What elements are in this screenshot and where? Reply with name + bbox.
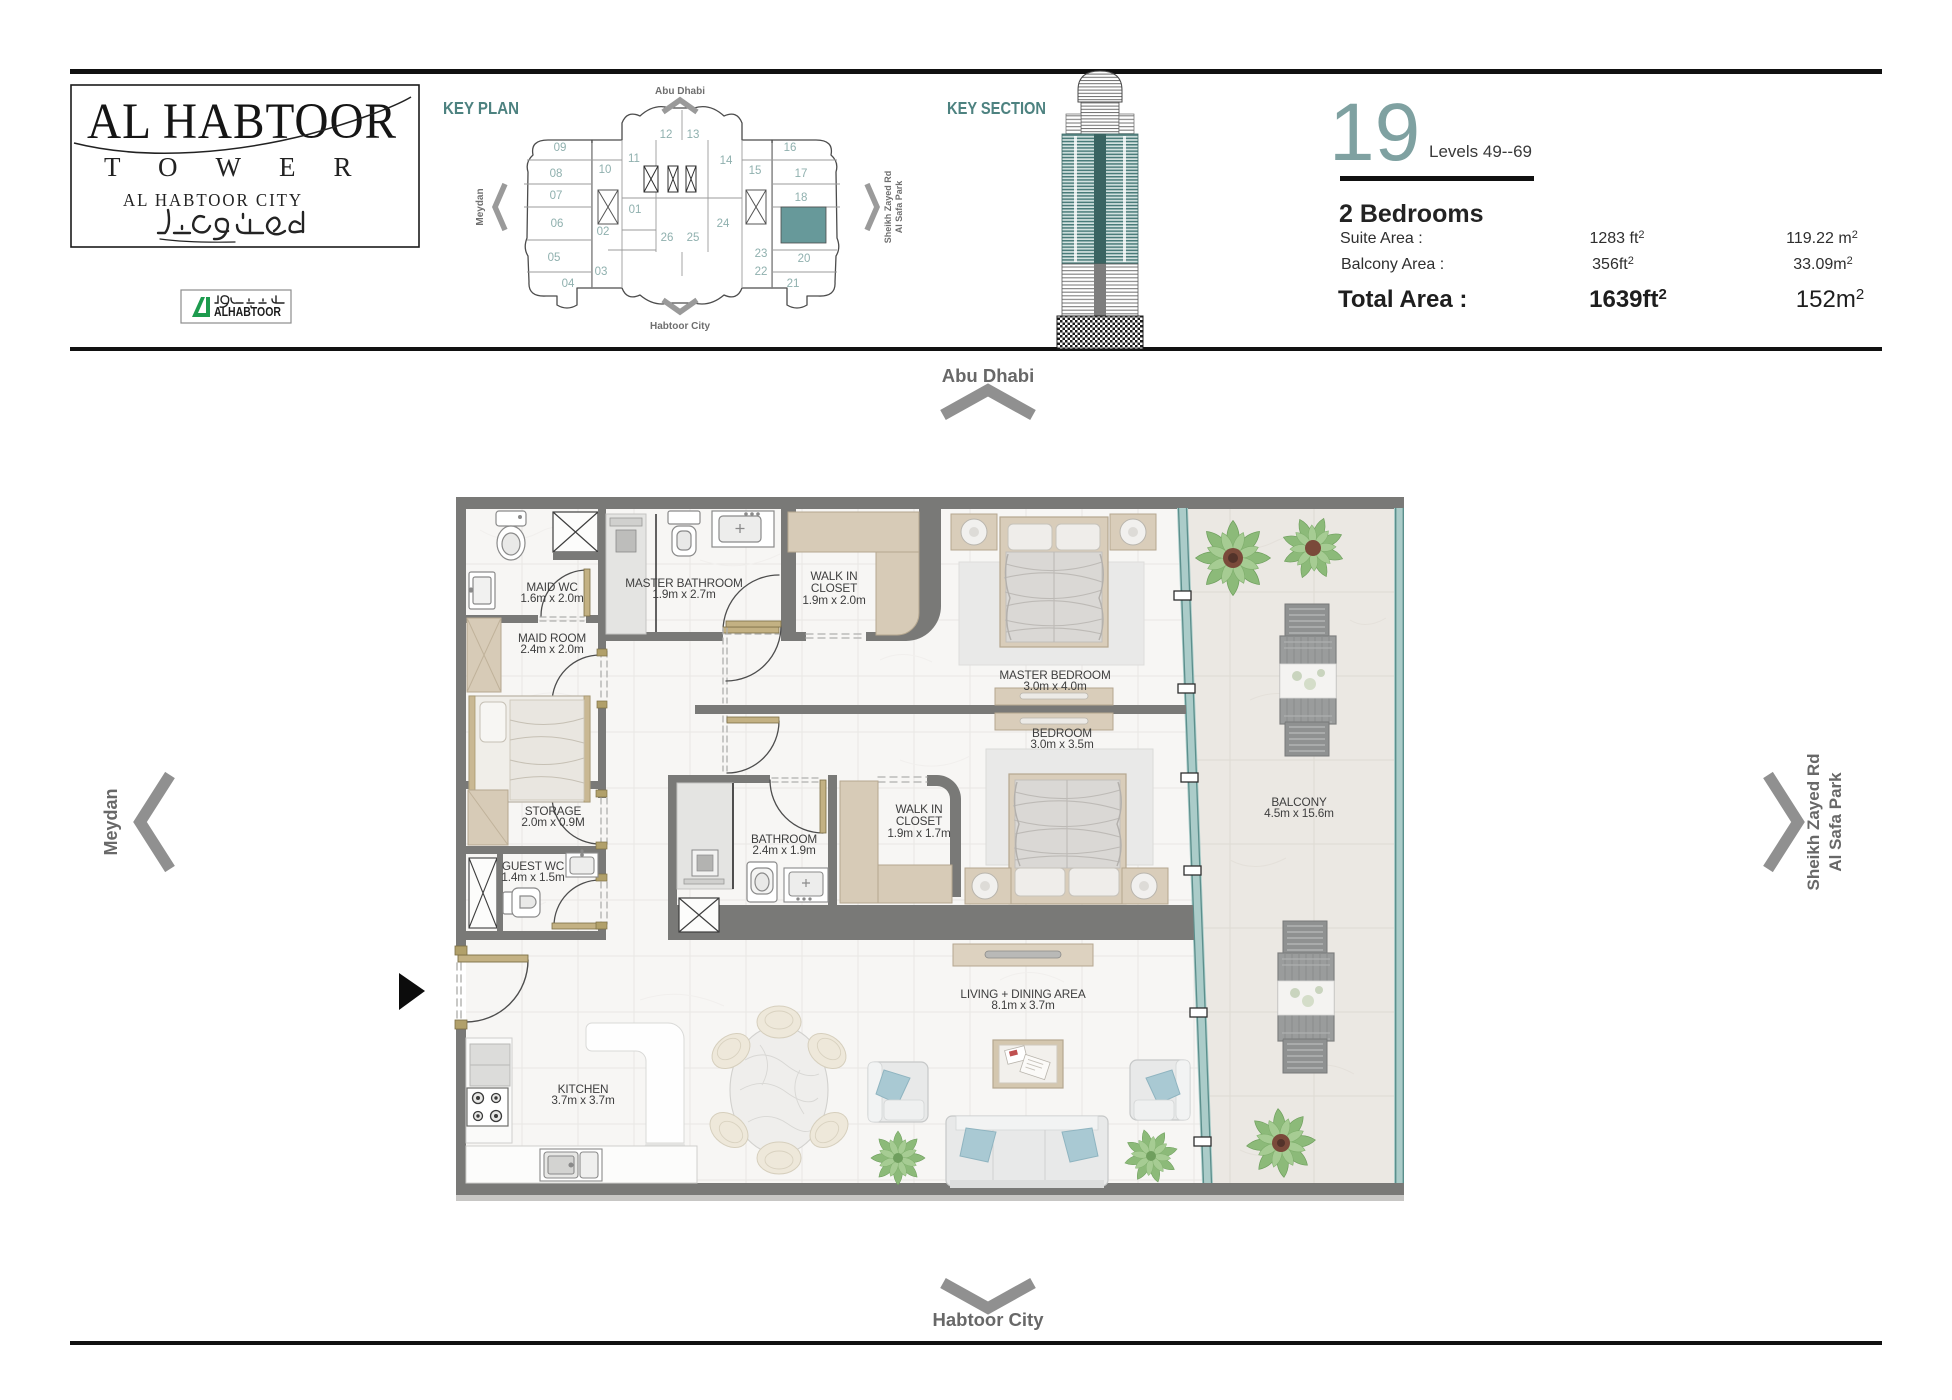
svg-text:21: 21 [787, 278, 800, 290]
svg-text:152m2: 152m2 [1796, 286, 1864, 313]
svg-text:04: 04 [562, 278, 575, 290]
svg-text:14: 14 [720, 155, 733, 167]
svg-text:3.7m x 3.7m: 3.7m x 3.7m [551, 1093, 615, 1107]
svg-text:18: 18 [795, 192, 808, 204]
svg-text:Habtoor City: Habtoor City [650, 321, 710, 332]
svg-text:06: 06 [551, 218, 564, 230]
svg-text:Meydan: Meydan [475, 188, 486, 225]
svg-text:15: 15 [749, 165, 762, 177]
svg-text:Sheikh Zayed Rd: Sheikh Zayed Rd [1804, 754, 1823, 891]
svg-text:08: 08 [550, 168, 563, 180]
svg-text:Abu Dhabi: Abu Dhabi [655, 86, 705, 97]
svg-text:2.4m x 1.9m: 2.4m x 1.9m [752, 843, 816, 857]
svg-text:24: 24 [717, 218, 730, 230]
svg-text:4.5m x 15.6m: 4.5m x 15.6m [1264, 806, 1334, 820]
svg-text:2 Bedrooms: 2 Bedrooms [1339, 200, 1483, 228]
svg-text:356ft2: 356ft2 [1592, 255, 1634, 273]
svg-text:119.22 m2: 119.22 m2 [1786, 229, 1858, 247]
svg-text:Balcony Area :: Balcony Area : [1341, 256, 1444, 273]
svg-text:16: 16 [784, 142, 797, 154]
svg-text:33.09m2: 33.09m2 [1793, 255, 1853, 273]
svg-text:1639ft2: 1639ft2 [1589, 286, 1667, 313]
svg-text:23: 23 [755, 248, 768, 260]
svg-text:1.9m x 1.7m: 1.9m x 1.7m [887, 826, 951, 840]
svg-text:Al Safa Park: Al Safa Park [894, 180, 904, 234]
svg-text:2.4m x 2.0m: 2.4m x 2.0m [520, 642, 584, 656]
svg-text:02: 02 [597, 226, 610, 238]
svg-text:3.0m x 4.0m: 3.0m x 4.0m [1023, 679, 1087, 693]
svg-text:26: 26 [661, 232, 674, 244]
svg-text:3.0m x 3.5m: 3.0m x 3.5m [1030, 737, 1094, 751]
svg-text:Al Safa Park: Al Safa Park [1826, 772, 1845, 872]
svg-text:1.9m x 2.0m: 1.9m x 2.0m [802, 593, 866, 607]
svg-text:KEY PLAN: KEY PLAN [443, 98, 519, 118]
svg-text:03: 03 [595, 266, 608, 278]
svg-text:1.6m x 2.0m: 1.6m x 2.0m [520, 591, 584, 605]
svg-text:Total Area :: Total Area : [1338, 286, 1467, 313]
svg-text:AL HABTOOR CITY: AL HABTOOR CITY [123, 190, 303, 210]
svg-text:Abu Dhabi: Abu Dhabi [942, 365, 1035, 386]
svg-text:11: 11 [628, 153, 640, 165]
svg-text:22: 22 [755, 266, 768, 278]
svg-text:12: 12 [660, 129, 673, 141]
svg-text:TOWER: TOWER [104, 152, 390, 182]
svg-text:Suite Area :: Suite Area : [1340, 230, 1423, 247]
svg-text:10: 10 [599, 164, 612, 176]
svg-text:17: 17 [795, 168, 808, 180]
svg-text:2.0m x 0.9M: 2.0m x 0.9M [521, 815, 584, 829]
svg-text:Meydan: Meydan [101, 788, 121, 855]
svg-text:Sheikh Zayed Rd: Sheikh Zayed Rd [883, 171, 893, 244]
svg-text:19: 19 [1329, 87, 1420, 178]
svg-text:Levels 49--69: Levels 49--69 [1429, 142, 1532, 161]
svg-text:09: 09 [554, 142, 567, 154]
svg-text:13: 13 [687, 129, 700, 141]
svg-text:ALHABTOOR: ALHABTOOR [214, 305, 281, 319]
svg-text:1.4m x 1.5m: 1.4m x 1.5m [501, 870, 565, 884]
svg-text:8.1m x 3.7m: 8.1m x 3.7m [991, 998, 1055, 1012]
svg-text:1283 ft2: 1283 ft2 [1589, 229, 1644, 247]
svg-text:01: 01 [629, 204, 642, 216]
svg-text:25: 25 [687, 232, 700, 244]
svg-text:KEY SECTION: KEY SECTION [947, 98, 1046, 118]
svg-text:20: 20 [798, 253, 811, 265]
svg-text:1.9m x 2.7m: 1.9m x 2.7m [652, 587, 716, 601]
svg-text:07: 07 [550, 190, 563, 202]
svg-text:05: 05 [548, 252, 561, 264]
